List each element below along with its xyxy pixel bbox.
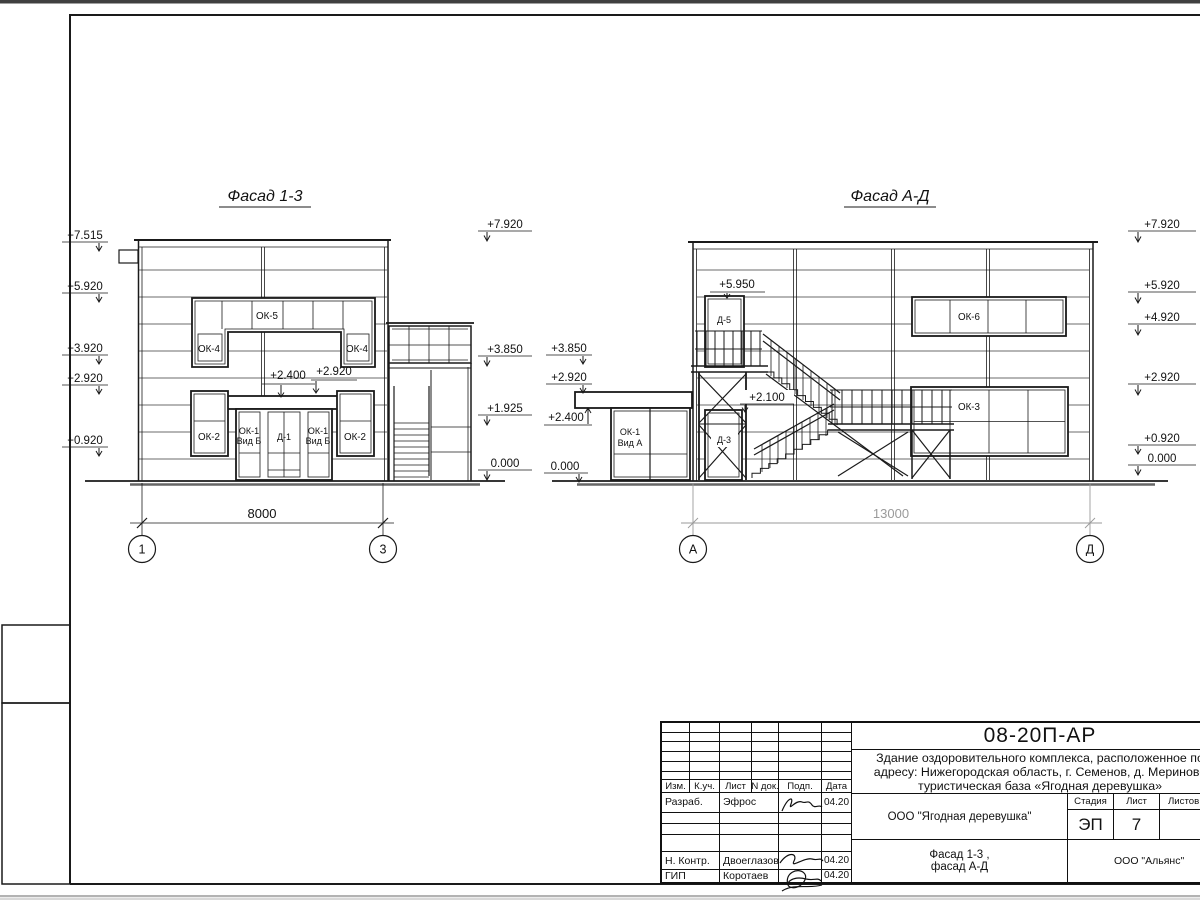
window-ok3: ОК-3 (911, 387, 1068, 456)
dimension-8000: 8000 (248, 506, 277, 521)
window-label-ok5: ОК-5 (256, 311, 279, 322)
facade-1-3-title: Фасад 1-3 (228, 188, 303, 205)
window-label-ok4-right: ОК-4 (346, 344, 369, 355)
svg-text:0.000: 0.000 (551, 461, 580, 473)
sheet-title: Фасад 1-3 , фасад А-Д (852, 840, 1067, 882)
facade-a-d-dimension: 13000 А Д (680, 483, 1104, 563)
svg-text:+5.950: +5.950 (719, 279, 755, 291)
window-label-ok4-left: ОК-4 (198, 344, 221, 355)
svg-text:+2.400: +2.400 (548, 412, 584, 424)
title-block: Изм. К.уч. Лист N док. Подп. Дата Разраб… (660, 721, 1200, 884)
svg-text:0.000: 0.000 (491, 458, 520, 470)
svg-text:ОК-3: ОК-3 (958, 402, 981, 413)
facade-1-3-elevations-right: +7.920 +3.850 +1.925 0.000 (478, 219, 532, 480)
svg-text:ОК-6: ОК-6 (958, 312, 981, 323)
entrance-glazing: ОК-1 Вид Б Д-1 ОК-1 Вид Б (236, 409, 332, 480)
vent-pipe (119, 250, 138, 263)
role-nkontr: Н. Контр. (662, 852, 720, 870)
svg-text:+7.515: +7.515 (67, 230, 103, 242)
role-razrab: Разраб. (662, 793, 720, 812)
window-ok2-right: ОК-2 (337, 391, 374, 456)
svg-text:+2.920: +2.920 (551, 372, 587, 384)
svg-text:+5.920: +5.920 (67, 281, 103, 293)
svg-text:+7.920: +7.920 (487, 219, 523, 231)
entrance-canopy (224, 396, 341, 409)
svg-text:+2.400: +2.400 (270, 370, 306, 382)
window-label-ok1-vida: ОК-1 (620, 427, 640, 437)
date-gip: 04.20 (822, 870, 851, 882)
window-label-ok1-left-view: Вид Б (237, 436, 262, 446)
svg-text:+2.920: +2.920 (67, 373, 103, 385)
axis-d: Д (1086, 543, 1095, 557)
annotation-2100: +2.100 (740, 390, 794, 412)
date-nkontr: 04.20 (822, 852, 851, 870)
sheet-value: 7 (1114, 810, 1160, 840)
title-block-main: 08-20П-АР Здание оздоровительного компле… (852, 723, 1200, 882)
sheets-label: Листов (1160, 794, 1200, 810)
axis-3: 3 (380, 543, 387, 557)
name-korotaev: Коротаев (720, 870, 779, 882)
annex-stair-treads (394, 423, 429, 477)
svg-text:0.000: 0.000 (1148, 453, 1177, 465)
window-ok6: ОК-6 (912, 297, 1066, 336)
svg-text:ОК-2: ОК-2 (344, 432, 366, 443)
side-annex: ОК-1 Вид А (575, 392, 692, 480)
col-list: Лист (720, 780, 752, 793)
col-ndok: N док. (752, 780, 779, 793)
col-data: Дата (822, 780, 851, 793)
svg-text:+2.920: +2.920 (1144, 372, 1180, 384)
sheet-label: Лист (1114, 794, 1160, 810)
stair-annex (386, 323, 474, 481)
facade-a-d-drawing: Фасад А-Д О (544, 188, 1196, 563)
svg-text:+1.925: +1.925 (487, 403, 523, 415)
stage-value: ЭП (1068, 810, 1114, 840)
svg-text:+3.920: +3.920 (67, 343, 103, 355)
lower-flight-balusters (762, 409, 826, 472)
axis-1: 1 (139, 543, 146, 557)
col-podp: Подп. (779, 780, 822, 793)
svg-text:+0.920: +0.920 (67, 435, 103, 447)
window-label-vida: Вид А (618, 438, 643, 448)
stage-label: Стадия (1068, 794, 1114, 810)
project-description: Здание оздоровительного комплекса, распо… (852, 750, 1200, 794)
svg-text:+4.920: +4.920 (1144, 312, 1180, 324)
facade-1-3-drawing: Фасад 1-3 (62, 188, 532, 563)
svg-text:+2.100: +2.100 (749, 392, 785, 404)
date-razrab: 04.20 (822, 793, 851, 812)
window-ok2-left: ОК-2 (191, 391, 228, 456)
door-label-d3: Д-3 (717, 435, 731, 445)
screen-top-edge (0, 0, 1200, 4)
svg-text:+3.850: +3.850 (551, 343, 587, 355)
drawing-sheet: Фасад 1-3 (0, 0, 1200, 900)
organization-name: ООО "Альянс" (1068, 840, 1200, 882)
role-gip: ГИП (662, 870, 720, 882)
svg-text:+5.920: +5.920 (1144, 280, 1180, 292)
name-dvoeglazov: Двоеглазов (720, 852, 779, 870)
facade-a-d-elevations-right: +7.920 +5.920 +4.920 +2.920 +0.920 0.000 (1128, 219, 1196, 475)
title-block-revision-table: Изм. К.уч. Лист N док. Подп. Дата Разраб… (662, 723, 852, 882)
axis-a: А (689, 543, 698, 557)
door-label-d1: Д-1 (277, 432, 291, 442)
facade-a-d-title: Фасад А-Д (850, 188, 929, 205)
client-name: ООО "Ягодная деревушка" (852, 794, 1067, 840)
window-label-ok1-right: ОК-1 (308, 426, 328, 436)
window-band-ok5-ok4: ОК-5 ОК-4 ОК-4 (192, 298, 375, 367)
document-number: 08-20П-АР (852, 723, 1200, 750)
svg-text:+3.850: +3.850 (487, 344, 523, 356)
svg-text:ОК-2: ОК-2 (198, 432, 220, 443)
facade-1-3-dimension: 8000 1 3 (129, 483, 397, 563)
window-label-ok1-right-view: Вид Б (306, 436, 331, 446)
window-label-ok1-left: ОК-1 (239, 426, 259, 436)
svg-text:+2.920: +2.920 (316, 366, 352, 378)
door-label-d5: Д-5 (717, 315, 731, 325)
col-izm: Изм. (662, 780, 690, 793)
svg-text:+0.920: +0.920 (1144, 433, 1180, 445)
name-efros: Эфрос (720, 793, 779, 812)
svg-text:+7.920: +7.920 (1144, 219, 1180, 231)
facade-1-3-elevations-left: +7.515 +5.920 +3.920 +2.920 +0.920 (62, 230, 108, 456)
dimension-13000: 13000 (873, 506, 909, 521)
facade-a-d-elevations-left: +3.850 +2.920 +2.400 0.000 (544, 343, 592, 482)
col-kuch: К.уч. (690, 780, 720, 793)
